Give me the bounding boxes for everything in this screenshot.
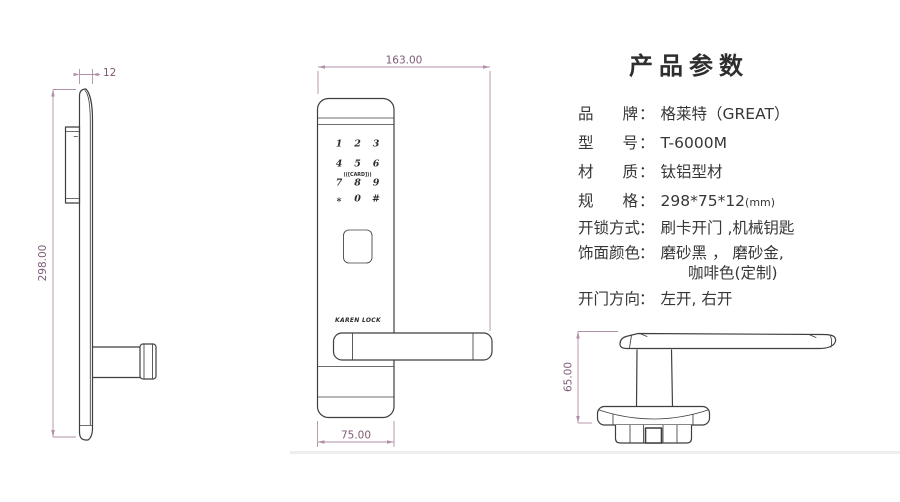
key-2[interactable]: 2 bbox=[353, 139, 361, 150]
spec-label: 饰面颜色 bbox=[578, 243, 638, 263]
colon: ： bbox=[639, 290, 655, 308]
dimension-front-total-width: 163.00 bbox=[318, 55, 490, 332]
front-view: 1 2 3 4 5 6 (([CARD])) 7 8 9 * 0 # KAREN… bbox=[318, 99, 493, 418]
handle-lever-bar bbox=[620, 334, 836, 349]
spec-row-model: 型号：T-6000M bbox=[578, 133, 727, 153]
keypad: 1 2 3 4 5 6 (([CARD])) 7 8 9 * 0 # bbox=[336, 139, 380, 208]
handle-side-view bbox=[598, 334, 836, 444]
key-cylinder-window bbox=[344, 230, 373, 263]
spec-value: 磨砂黑 ， 磨砂金, bbox=[661, 244, 784, 262]
key-6[interactable]: 6 bbox=[373, 159, 380, 170]
colon: ： bbox=[639, 192, 655, 210]
spec-value-line2: 咖啡色(定制) bbox=[688, 263, 784, 283]
side-thickness-dimension-label: 12 bbox=[103, 67, 116, 79]
scan-artifact-line bbox=[290, 451, 900, 454]
key-7[interactable]: 7 bbox=[336, 178, 343, 189]
key-1[interactable]: 1 bbox=[336, 139, 343, 150]
colon: ： bbox=[639, 163, 655, 181]
spec-label: 型号 bbox=[578, 133, 638, 153]
handle-height-dimension-label: 65.00 bbox=[563, 362, 575, 392]
page-title: 产品参数 bbox=[629, 46, 749, 81]
dimension-front-body-width: 75.00 bbox=[318, 421, 395, 447]
dimension-side-height: 298.00 bbox=[37, 90, 76, 438]
spec-row-door-direction: 开门方向：左开, 右开 bbox=[578, 289, 732, 309]
key-4[interactable]: 4 bbox=[336, 159, 343, 170]
side-handle-knob bbox=[140, 344, 156, 379]
spec-value: T-6000M bbox=[661, 134, 727, 152]
spec-label: 品牌 bbox=[578, 104, 638, 124]
spec-value: 298*75*12 bbox=[661, 192, 746, 210]
spec-row-material: 材质：钛铝型材 bbox=[578, 162, 723, 182]
key-8[interactable]: 8 bbox=[354, 178, 361, 189]
spec-row-size: 规格：298*75*12(mm) bbox=[578, 191, 775, 213]
key-hash[interactable]: # bbox=[372, 194, 380, 205]
key-9[interactable]: 9 bbox=[373, 178, 380, 189]
front-body-width-dimension-label: 75.00 bbox=[341, 430, 371, 442]
front-total-width-dimension-label: 163.00 bbox=[386, 55, 423, 67]
side-body-inner-line bbox=[85, 91, 90, 426]
handle-spindle-hub bbox=[646, 428, 662, 443]
spec-row-brand: 品牌：格莱特（GREAT） bbox=[578, 104, 789, 124]
colon: ： bbox=[639, 219, 655, 237]
spec-row-finish-color: 饰面颜色：磨砂黑 ， 磨砂金, 咖啡色(定制) bbox=[578, 243, 784, 283]
spec-value: 钛铝型材 bbox=[661, 163, 723, 181]
key-0[interactable]: 0 bbox=[354, 194, 361, 205]
spec-value: 左开, 右开 bbox=[661, 290, 733, 308]
spec-sheet: 298.00 12 1 2 3 4 5 6 (([CARD])) bbox=[0, 0, 900, 502]
colon: ： bbox=[639, 134, 655, 152]
spec-value: 刷卡开门 ,机械钥匙 bbox=[661, 219, 795, 237]
key-3[interactable]: 3 bbox=[373, 139, 380, 150]
side-height-dimension-label: 298.00 bbox=[37, 245, 49, 282]
side-handle bbox=[93, 344, 156, 379]
side-keypad-bump bbox=[66, 127, 80, 203]
colon: ： bbox=[639, 244, 655, 262]
spec-label: 材质 bbox=[578, 162, 638, 182]
spec-label: 开锁方式 bbox=[578, 218, 638, 238]
key-5[interactable]: 5 bbox=[354, 159, 361, 170]
spec-unit: (mm) bbox=[745, 196, 775, 209]
spec-row-unlock-method: 开锁方式：刷卡开门 ,机械钥匙 bbox=[578, 218, 794, 238]
spec-label: 规格 bbox=[578, 191, 638, 211]
dimension-side-thickness: 12 bbox=[74, 67, 117, 84]
spec-label: 开门方向 bbox=[578, 289, 638, 309]
front-handle bbox=[334, 333, 493, 360]
colon: ： bbox=[639, 105, 655, 123]
side-view bbox=[66, 89, 157, 440]
spec-value: 格莱特（GREAT） bbox=[661, 105, 790, 123]
brand-logo-text: KAREN LOCK bbox=[335, 317, 382, 324]
key-star[interactable]: * bbox=[337, 197, 342, 208]
